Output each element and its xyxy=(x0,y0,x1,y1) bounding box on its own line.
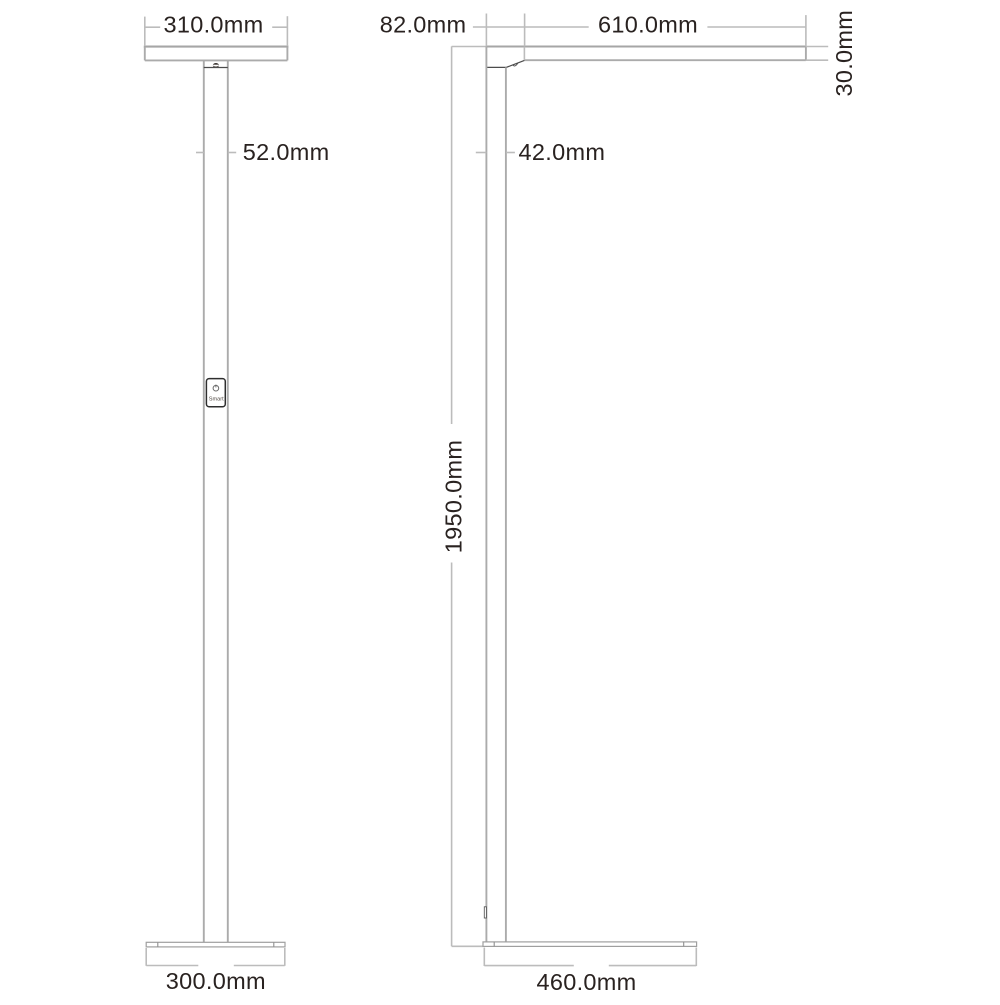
svg-text:460.0mm: 460.0mm xyxy=(536,969,636,995)
svg-text:Smart: Smart xyxy=(209,397,224,403)
svg-text:610.0mm: 610.0mm xyxy=(598,12,698,38)
svg-text:52.0mm: 52.0mm xyxy=(243,139,330,165)
svg-text:42.0mm: 42.0mm xyxy=(519,139,606,165)
svg-text:300.0mm: 300.0mm xyxy=(166,968,266,994)
svg-text:82.0mm: 82.0mm xyxy=(380,12,467,38)
svg-text:310.0mm: 310.0mm xyxy=(163,12,263,38)
svg-text:30.0mm: 30.0mm xyxy=(831,10,857,97)
svg-text:1950.0mm: 1950.0mm xyxy=(441,440,467,553)
